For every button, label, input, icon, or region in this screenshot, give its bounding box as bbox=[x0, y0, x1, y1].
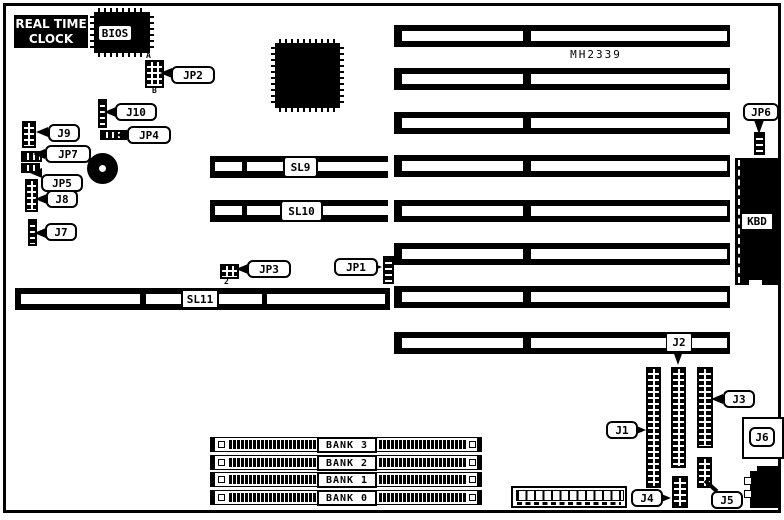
cpu-chip-pins-right bbox=[340, 47, 344, 104]
speaker-hole bbox=[99, 165, 106, 172]
j1-label: J1 bbox=[606, 421, 638, 439]
cpu-chip-pins-bottom bbox=[279, 108, 336, 112]
simm-slot-bank2: BANK 2 bbox=[210, 455, 482, 470]
bank-cap bbox=[211, 456, 215, 469]
rtc-text-line2: CLOCK bbox=[14, 32, 88, 47]
bios-label: BIOS bbox=[97, 24, 133, 42]
j7-label: J7 bbox=[45, 223, 77, 241]
bank-cap bbox=[211, 438, 215, 451]
power-connector-contacts bbox=[517, 502, 621, 505]
expansion-slot-3 bbox=[394, 112, 730, 134]
cpu-chip bbox=[275, 43, 340, 108]
jp7-pointer bbox=[33, 149, 45, 159]
j8-label: J8 bbox=[46, 190, 78, 208]
sl11-label: SL11 bbox=[181, 289, 219, 309]
real-time-clock-block: REAL TIME CLOCK bbox=[14, 15, 88, 48]
j3-label: J3 bbox=[723, 390, 755, 408]
bank-cap bbox=[477, 456, 481, 469]
chip-part-number: MH2339 bbox=[548, 48, 644, 61]
jp4-label: JP4 bbox=[127, 126, 171, 144]
jp1-label: JP1 bbox=[334, 258, 378, 276]
j2-connector bbox=[671, 367, 686, 468]
jp3-label: JP3 bbox=[247, 260, 291, 278]
bank-cap bbox=[211, 473, 215, 486]
bank-latch bbox=[469, 476, 476, 483]
simm-slot-bank1: BANK 1 bbox=[210, 472, 482, 487]
din-connector-body bbox=[750, 471, 781, 508]
expansion-slot-1 bbox=[394, 25, 730, 47]
jp7-label: JP7 bbox=[45, 145, 91, 163]
din-notch-1 bbox=[744, 477, 752, 485]
jp2-label: JP2 bbox=[171, 66, 215, 84]
j4-connector bbox=[672, 476, 688, 508]
j5-label: J5 bbox=[711, 491, 743, 509]
expansion-slot-2 bbox=[394, 68, 730, 90]
bank-latch bbox=[469, 494, 476, 501]
expansion-slot-6 bbox=[394, 243, 730, 265]
bios-chip-pins-bottom bbox=[98, 53, 146, 57]
sl9-label: SL9 bbox=[283, 156, 318, 178]
sl11-opening-1 bbox=[21, 294, 140, 304]
sl10-label: SL10 bbox=[280, 200, 323, 222]
simm-slot-bank3: BANK 3 bbox=[210, 437, 482, 452]
bank3-label: BANK 3 bbox=[317, 437, 377, 453]
rtc-text-line1: REAL TIME bbox=[14, 17, 88, 32]
motherboard-diagram: REAL TIME CLOCK BIOS A B JP2 J10 JP4 J9 … bbox=[0, 0, 784, 520]
din-notch-2 bbox=[744, 490, 752, 498]
kbd-dashed-edge bbox=[738, 160, 740, 283]
kbd-notch bbox=[749, 280, 762, 285]
j1-connector bbox=[646, 367, 661, 488]
bank-pins bbox=[229, 493, 319, 502]
j9-connector bbox=[22, 121, 36, 148]
bank-latch bbox=[469, 441, 476, 448]
bank-latch bbox=[469, 459, 476, 466]
bank-latch bbox=[218, 476, 225, 483]
jp6-pointer bbox=[754, 120, 764, 134]
expansion-slot-5 bbox=[394, 200, 730, 222]
bank-pins bbox=[229, 475, 319, 484]
j3-connector bbox=[697, 367, 713, 448]
bank-pins bbox=[379, 493, 467, 502]
bank-latch bbox=[218, 494, 225, 501]
bank-cap bbox=[477, 491, 481, 504]
j3-pointer bbox=[711, 394, 723, 404]
j10-label: J10 bbox=[115, 103, 157, 121]
expansion-slot-7 bbox=[394, 286, 730, 308]
bank-pins bbox=[379, 458, 467, 467]
j6-label: J6 bbox=[749, 427, 775, 447]
j2-label: J2 bbox=[666, 333, 692, 352]
power-connector-holes bbox=[516, 490, 624, 501]
j2-pointer bbox=[673, 351, 683, 365]
bank0-label: BANK 0 bbox=[317, 490, 377, 506]
bank-latch bbox=[218, 459, 225, 466]
bank-cap bbox=[477, 473, 481, 486]
bank-pins bbox=[379, 440, 467, 449]
bank-pins bbox=[229, 440, 319, 449]
bank1-label: BANK 1 bbox=[317, 472, 377, 488]
sl11-opening-3 bbox=[267, 294, 385, 304]
bank-cap bbox=[211, 491, 215, 504]
j9-label: J9 bbox=[48, 124, 80, 142]
jp1-connector bbox=[383, 256, 394, 284]
jp6-connector bbox=[754, 132, 765, 155]
bios-chip-pins-right bbox=[150, 16, 154, 49]
simm-slot-bank0: BANK 0 bbox=[210, 490, 482, 505]
jp6-label: JP6 bbox=[743, 103, 779, 121]
bank-pins bbox=[229, 458, 319, 467]
bank2-label: BANK 2 bbox=[317, 455, 377, 471]
bank-cap bbox=[477, 438, 481, 451]
jp5-pointer bbox=[30, 168, 42, 178]
bank-pins bbox=[379, 475, 467, 484]
kbd-label: KBD bbox=[741, 213, 773, 230]
expansion-slot-4 bbox=[394, 155, 730, 177]
j9-pointer bbox=[36, 127, 48, 137]
bank-latch bbox=[218, 441, 225, 448]
j4-label: J4 bbox=[631, 489, 663, 507]
speaker-icon bbox=[87, 153, 118, 184]
power-connector bbox=[511, 486, 627, 508]
